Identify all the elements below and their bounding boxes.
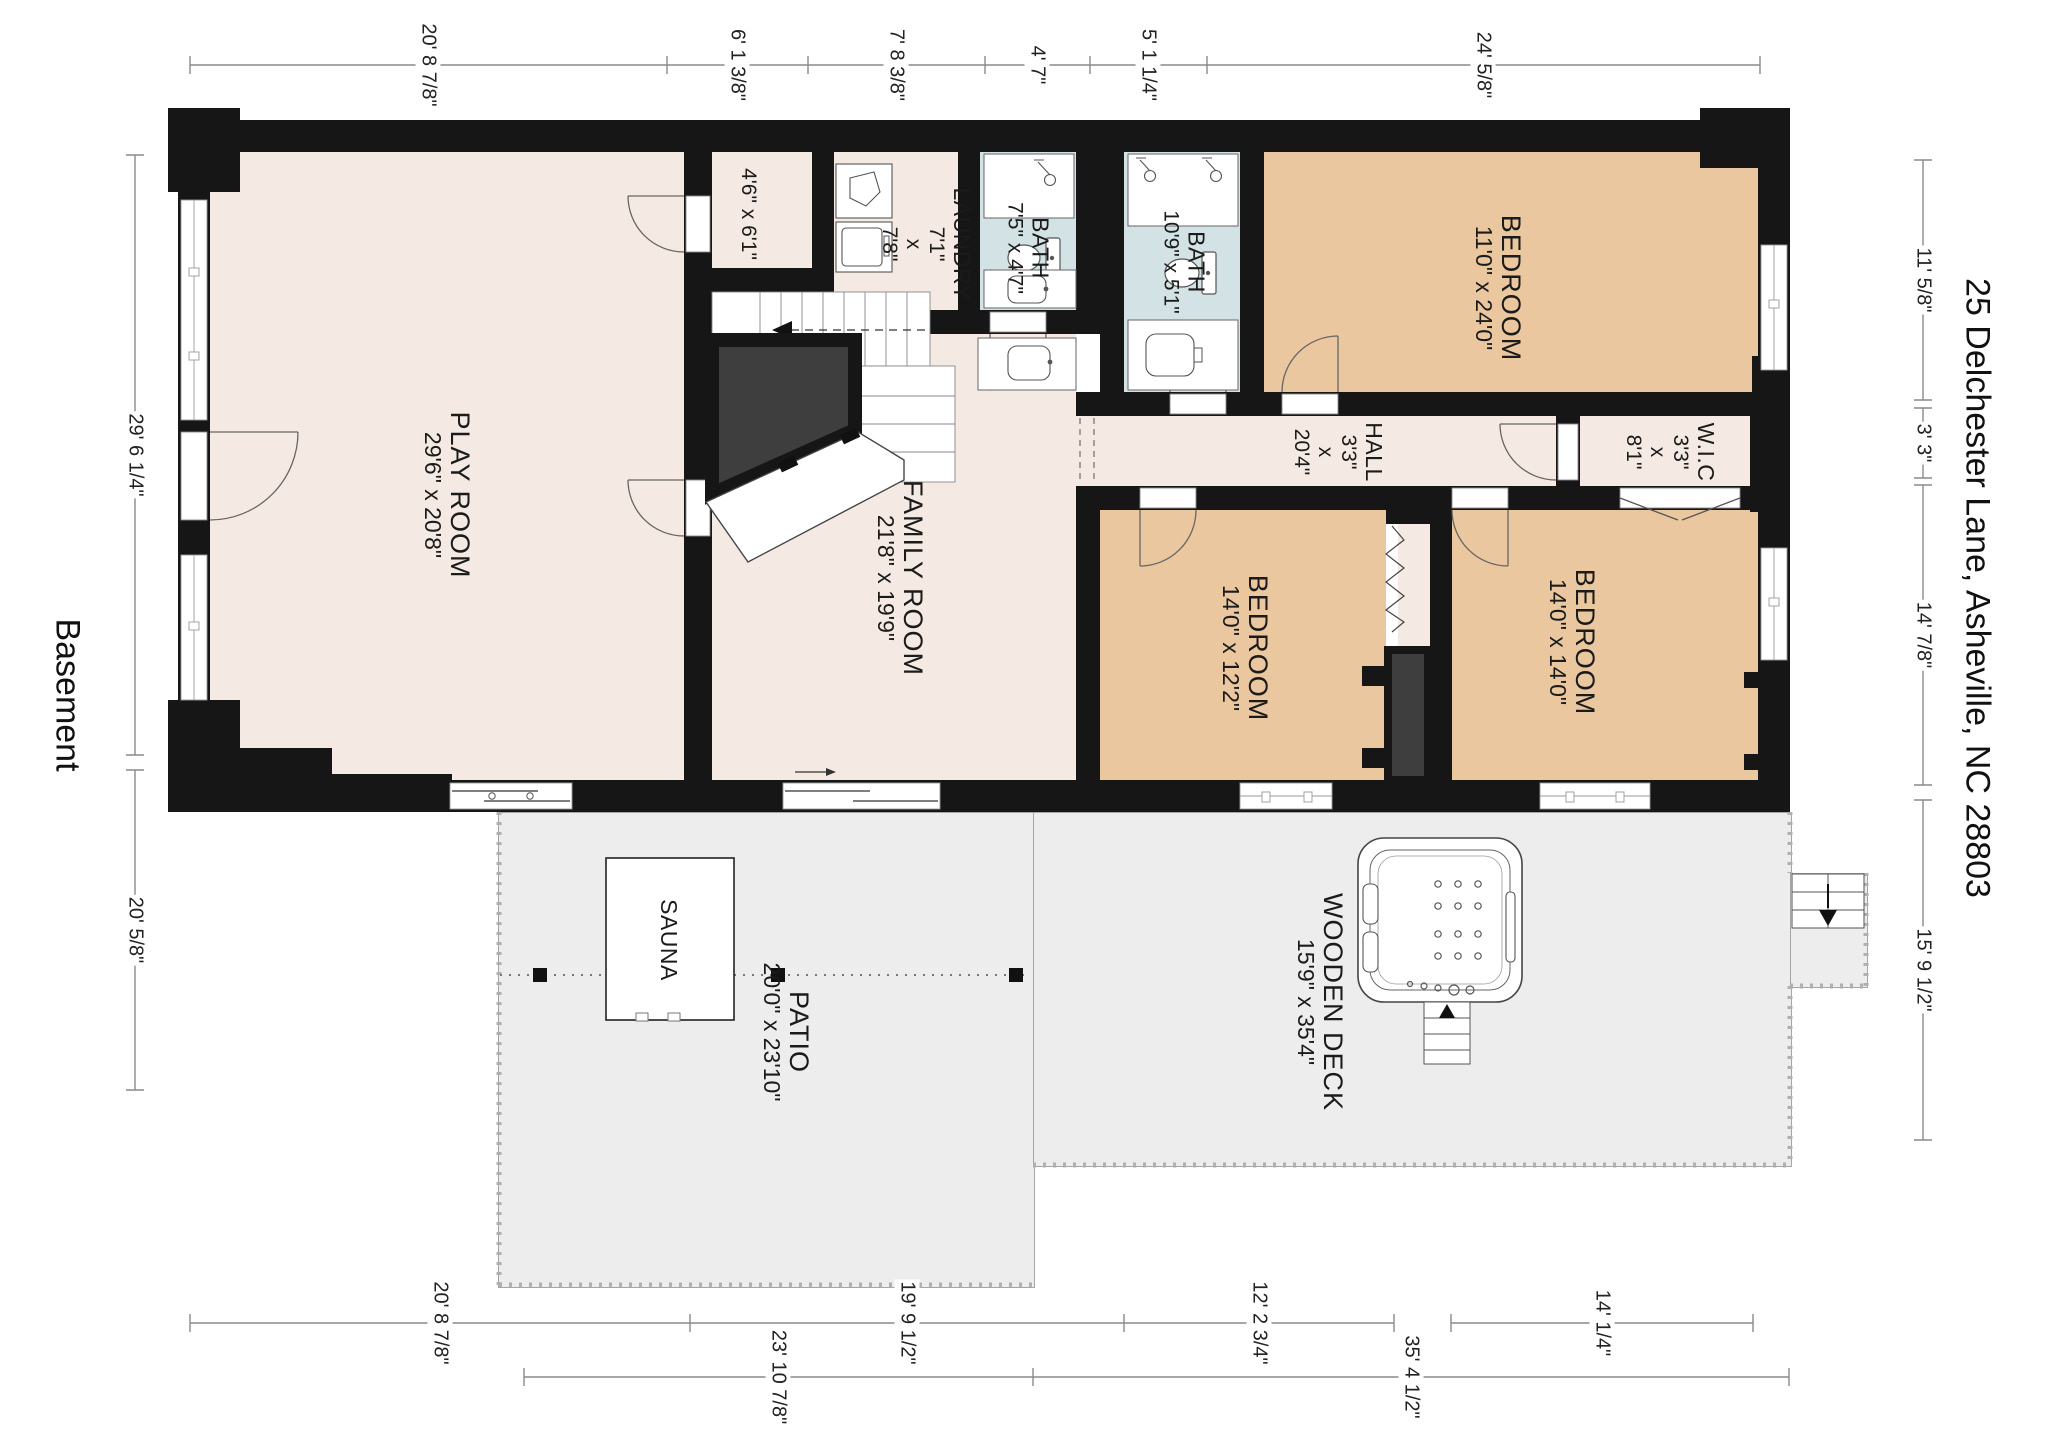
playroom-size: 29'6" x 20'8" xyxy=(419,411,445,578)
cased-opening xyxy=(1080,418,1094,484)
plan-address: 25 Delchester Lane, Asheville, NC 28803 xyxy=(1958,278,1997,898)
family-room-label: FAMILY ROOM 21'8" x 19'9" xyxy=(872,480,928,676)
dim-left-1: 29' 6 1/4" xyxy=(123,411,148,498)
floorplan-page: PLAY ROOM 29'6" x 20'8" FAMILY ROOM 21'8… xyxy=(0,0,2048,1448)
dim-bottom-inner-1: 20' 8 7/8" xyxy=(428,1279,453,1366)
dim-right-4: 15' 9 1/2" xyxy=(1911,926,1936,1013)
wooden-deck-label: WOODEN DECK 15'9" x 35'4" xyxy=(1292,893,1348,1111)
accordion-door xyxy=(1386,526,1404,632)
dim-bottom-inner-3: 12' 2 3/4" xyxy=(1247,1279,1272,1366)
bedroom-top-label: BEDROOM 11'0" x 24'0" xyxy=(1470,215,1526,362)
bedroom-right-label: BEDROOM 14'0" x 14'0" xyxy=(1544,569,1600,716)
dim-bottom-outer-1: 23' 10 7/8" xyxy=(766,1328,791,1426)
dim-top-6: 24' 5/8" xyxy=(1471,30,1496,101)
dim-top-1: 20' 8 7/8" xyxy=(416,21,441,108)
family-cabinet-sink xyxy=(978,338,1076,390)
laundry-label: LAUNDRY 7'1" x 7'8" xyxy=(878,188,974,301)
hall-label: HALL 3'3" x 20'4" xyxy=(1290,422,1386,482)
dim-left-2: 20' 5/8" xyxy=(123,895,148,966)
patio-label: PATIO 20'0" x 23'10" xyxy=(758,963,814,1102)
family-size: 21'8" x 19'9" xyxy=(872,480,898,676)
sliding-door-playroom xyxy=(450,783,572,809)
dim-bottom-outer-2: 35' 4 1/2" xyxy=(1399,1333,1424,1420)
bedroom-left-label: BEDROOM 14'0" x 12'2" xyxy=(1217,575,1273,722)
dim-top-2: 6' 1 3/8" xyxy=(725,27,750,103)
dim-bottom-inner-2: 19' 9 1/2" xyxy=(895,1279,920,1366)
bath2-vanity-sink xyxy=(1128,320,1238,390)
plan-title: Basement xyxy=(48,618,87,771)
wic-label: W.I.C 3'3" x 8'1" xyxy=(1622,423,1718,482)
dim-right-1: 11' 5/8" xyxy=(1911,245,1936,314)
deck-stairs xyxy=(1424,1002,1470,1064)
bath1-label: BATH 7'5" x 4'7" xyxy=(1003,202,1052,294)
sauna-label: SAUNA xyxy=(655,899,681,981)
closet-size: 4'6" x 6'1" xyxy=(736,168,760,260)
bath2-label: BATH 10'9" x 5'1" xyxy=(1159,210,1208,314)
family-name: FAMILY ROOM xyxy=(898,480,928,676)
dim-top-4: 4' 7" xyxy=(1025,44,1050,87)
playroom-name: PLAY ROOM xyxy=(445,411,475,578)
hot-tub xyxy=(1358,838,1522,1002)
dim-right-2: 3' 3" xyxy=(1911,422,1936,465)
sliding-door-family xyxy=(783,768,940,809)
playroom-label: PLAY ROOM 29'6" x 20'8" xyxy=(419,411,475,578)
closet-label: 4'6" x 6'1" xyxy=(736,168,760,260)
dim-top-3: 7' 8 3/8" xyxy=(884,27,909,103)
dim-right-3: 14' 7/8" xyxy=(1911,600,1936,671)
deck-landing-stairs xyxy=(1792,874,1864,928)
dim-bottom-inner-4: 14' 1/4" xyxy=(1590,1288,1615,1359)
dim-top-5: 5' 1 1/4" xyxy=(1136,27,1161,103)
